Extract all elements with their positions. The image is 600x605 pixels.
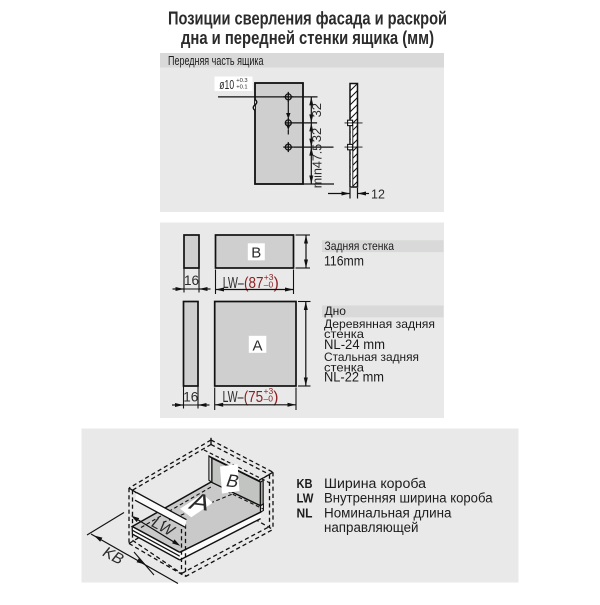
svg-text:дна и передней стенки ящика (м: дна и передней стенки ящика (мм): [181, 27, 434, 48]
svg-text:ø10: ø10: [219, 78, 234, 92]
svg-text:Задняя стенка: Задняя стенка: [325, 239, 395, 253]
svg-text:Позиции сверления фасада и рас: Позиции сверления фасада и раскрой: [168, 8, 447, 29]
svg-text:Передняя часть ящика: Передняя часть ящика: [168, 54, 264, 68]
svg-text:NL-24 mm: NL-24 mm: [324, 337, 385, 352]
svg-text:–0: –0: [264, 280, 274, 290]
svg-text:32: 32: [309, 103, 324, 117]
svg-text:+0.3: +0.3: [236, 78, 247, 84]
svg-text:A: A: [252, 337, 262, 354]
svg-text:116mm: 116mm: [324, 254, 364, 269]
svg-text:NL: NL: [297, 506, 313, 521]
svg-text:Номинальная длина: Номинальная длина: [324, 506, 452, 521]
svg-text:Ширина короба: Ширина короба: [324, 476, 427, 491]
svg-text:+0.1: +0.1: [236, 84, 247, 90]
svg-text:16: 16: [184, 273, 199, 288]
svg-text:16: 16: [183, 390, 198, 405]
svg-text:LW: LW: [297, 491, 315, 506]
svg-text:–0: –0: [264, 394, 274, 404]
svg-text:): ): [273, 389, 278, 406]
svg-text:B: B: [251, 245, 261, 262]
svg-text:направляющей: направляющей: [324, 520, 419, 535]
svg-text:LW–: LW–: [223, 389, 244, 406]
svg-text:NL-22 mm: NL-22 mm: [324, 370, 384, 385]
svg-text:12: 12: [371, 187, 385, 201]
svg-text:32: 32: [309, 128, 324, 142]
svg-text:(75: (75: [244, 389, 264, 406]
svg-text:Внутренняя ширина короба: Внутренняя ширина короба: [324, 491, 493, 506]
svg-text:min47.5: min47.5: [311, 144, 325, 189]
svg-text:KB: KB: [297, 476, 313, 491]
svg-text:Дно: Дно: [325, 304, 347, 318]
